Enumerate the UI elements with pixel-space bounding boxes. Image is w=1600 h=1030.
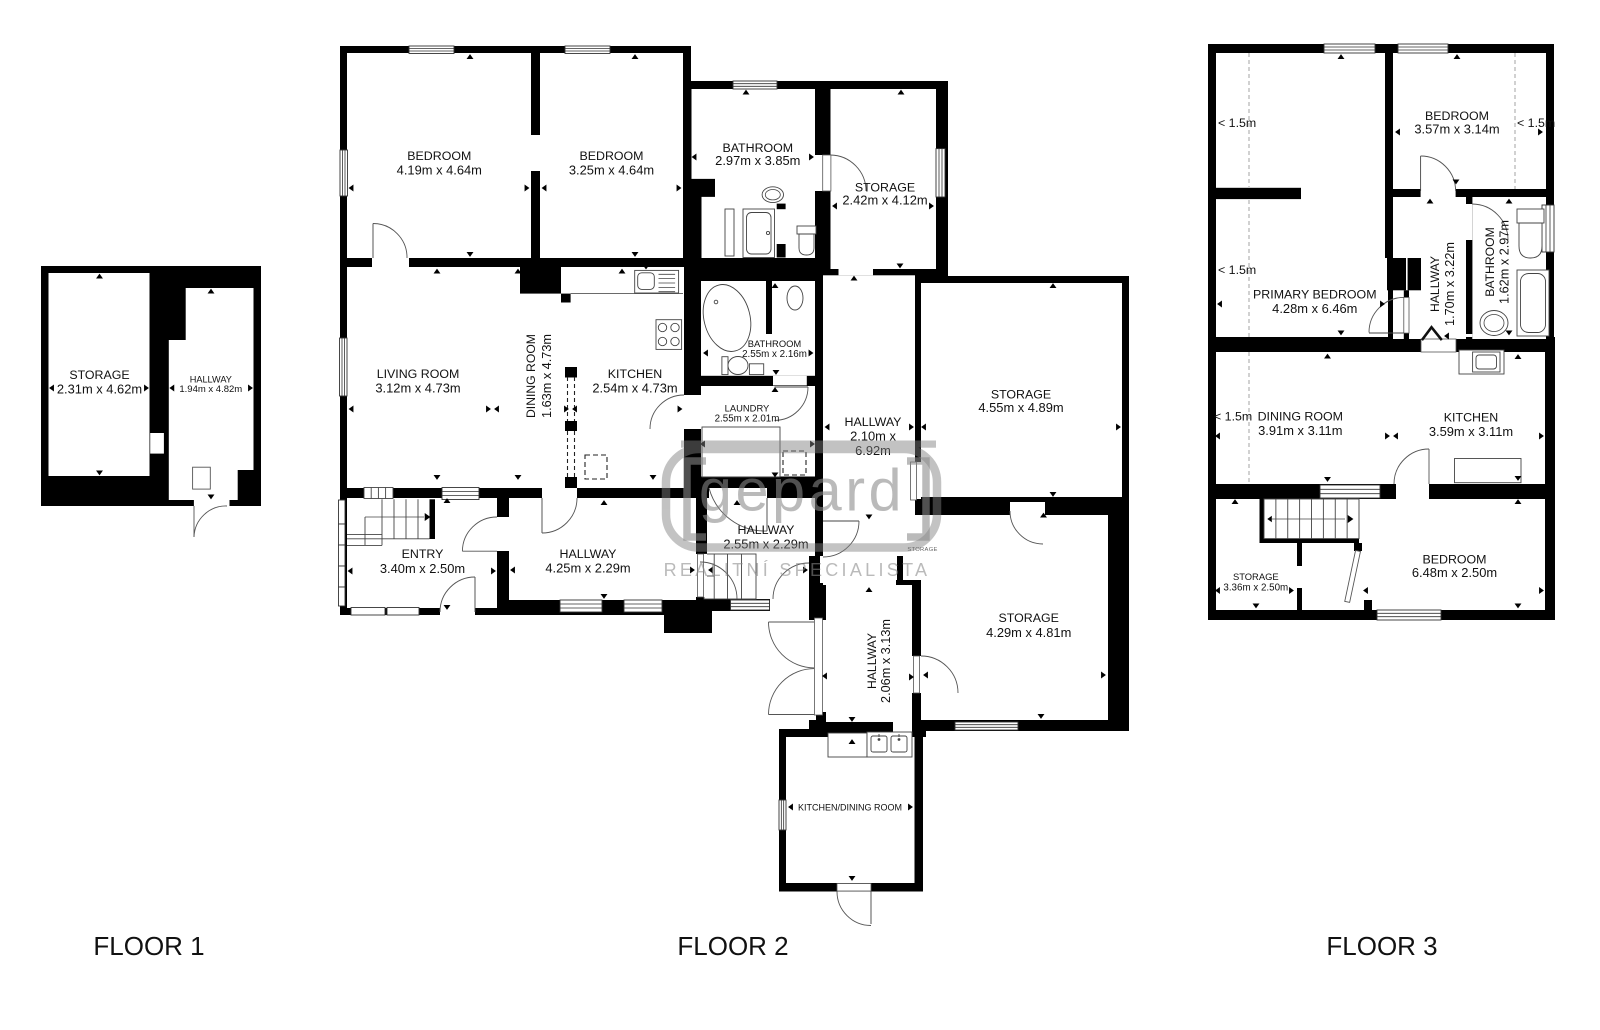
svg-text:HALLWAY: HALLWAY (845, 415, 902, 429)
svg-text:FLOOR 1: FLOOR 1 (93, 931, 204, 961)
svg-text:2.55m x 2.16m: 2.55m x 2.16m (742, 349, 807, 360)
svg-text:LAUNDRY: LAUNDRY (725, 402, 770, 413)
svg-text:gepard: gepard (699, 457, 905, 524)
svg-text:ENTRY: ENTRY (402, 547, 444, 561)
svg-text:1.94m x 4.82m: 1.94m x 4.82m (179, 384, 242, 395)
svg-text:KITCHEN/DINING ROOM: KITCHEN/DINING ROOM (798, 802, 902, 812)
svg-text:3.12m x 4.73m: 3.12m x 4.73m (375, 381, 460, 396)
svg-text:REALITNÍ SPECIALISTA: REALITNÍ SPECIALISTA (664, 560, 931, 580)
svg-text:< 1.5m: < 1.5m (1218, 116, 1256, 130)
svg-text:STORAGE: STORAGE (999, 611, 1059, 625)
svg-text:1.62m x 2.97m: 1.62m x 2.97m (1497, 220, 1511, 304)
svg-text:3.59m x 3.11m: 3.59m x 3.11m (1429, 424, 1513, 439)
svg-text:2.55m x 2.01m: 2.55m x 2.01m (715, 413, 780, 424)
svg-text:HALLWAY: HALLWAY (1428, 256, 1442, 312)
svg-text:HALLWAY: HALLWAY (560, 547, 617, 561)
svg-text:4.29m x 4.81m: 4.29m x 4.81m (986, 625, 1071, 640)
svg-text:KITCHEN: KITCHEN (1444, 410, 1498, 424)
svg-text:BATHROOM: BATHROOM (1483, 227, 1497, 297)
svg-text:3.57m x 3.14m: 3.57m x 3.14m (1414, 121, 1499, 136)
svg-text:PRIMARY BEDROOM: PRIMARY BEDROOM (1253, 288, 1376, 302)
svg-text:3.40m x 2.50m: 3.40m x 2.50m (380, 561, 465, 576)
svg-text:HALLWAY: HALLWAY (865, 633, 879, 689)
svg-text:3.25m x 4.64m: 3.25m x 4.64m (569, 163, 654, 178)
svg-text:6.48m x 2.50m: 6.48m x 2.50m (1412, 565, 1497, 580)
svg-text:4.28m x 6.46m: 4.28m x 6.46m (1272, 301, 1357, 316)
svg-text:HALLWAY: HALLWAY (738, 523, 795, 537)
svg-text:FLOOR 3: FLOOR 3 (1326, 931, 1437, 961)
svg-text:2.06m x 3.13m: 2.06m x 3.13m (879, 619, 893, 703)
svg-text:1.63m x 4.73m: 1.63m x 4.73m (540, 334, 554, 418)
svg-text:BEDROOM: BEDROOM (579, 149, 643, 163)
svg-text:3.91m x 3.11m: 3.91m x 3.11m (1258, 423, 1342, 438)
svg-text:< 1.5m: < 1.5m (1214, 410, 1252, 424)
svg-text:4.19m x 4.64m: 4.19m x 4.64m (397, 163, 482, 178)
svg-text:2.54m x 4.73m: 2.54m x 4.73m (592, 381, 677, 396)
svg-text:BATHROOM: BATHROOM (748, 338, 802, 349)
svg-text:KITCHEN: KITCHEN (608, 367, 662, 381)
svg-text:2.31m x 4.62m: 2.31m x 4.62m (57, 381, 142, 396)
svg-text:STORAGE: STORAGE (907, 547, 937, 553)
svg-text:3.36m x 2.50m: 3.36m x 2.50m (1223, 582, 1288, 593)
svg-text:2.97m x 3.85m: 2.97m x 3.85m (715, 153, 800, 168)
svg-text:DINING ROOM: DINING ROOM (1258, 410, 1343, 424)
svg-text:STORAGE: STORAGE (69, 368, 129, 382)
svg-text:2.42m x 4.12m: 2.42m x 4.12m (842, 193, 927, 208)
svg-text:FLOOR 2: FLOOR 2 (677, 931, 788, 961)
svg-text:BEDROOM: BEDROOM (407, 149, 471, 163)
svg-text:STORAGE: STORAGE (1233, 571, 1279, 582)
svg-text:< 1.5m: < 1.5m (1517, 116, 1555, 130)
svg-text:1.70m x 3.22m: 1.70m x 3.22m (1443, 242, 1457, 326)
svg-text:DINING ROOM: DINING ROOM (524, 334, 538, 418)
svg-text:LIVING ROOM: LIVING ROOM (377, 367, 460, 381)
svg-text:HALLWAY: HALLWAY (190, 374, 232, 384)
svg-text:4.55m x 4.89m: 4.55m x 4.89m (978, 400, 1063, 415)
svg-text:< 1.5m: < 1.5m (1218, 263, 1256, 277)
svg-text:4.25m x 2.29m: 4.25m x 2.29m (545, 561, 630, 576)
